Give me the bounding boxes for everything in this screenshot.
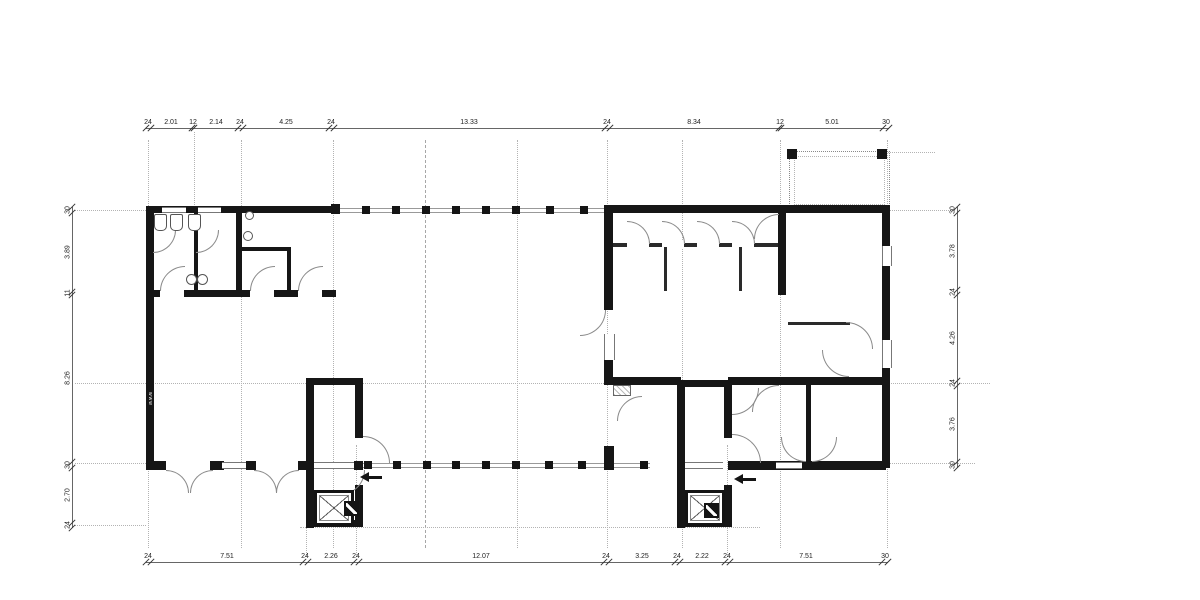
column [392,206,400,214]
grid-line [425,140,426,548]
door-arc [846,322,873,349]
dimension-label: 24 [236,119,244,126]
door-arc [732,221,755,244]
toilet-fixture [170,214,183,231]
column [452,206,460,214]
door-arc [732,434,761,463]
dimension-label: 2.14 [209,119,223,126]
door-arc [166,470,189,493]
dimension-label: 3.78 [950,244,957,258]
window [222,462,248,469]
stair-core-wall [355,378,363,438]
door-arc [363,436,390,463]
column [423,461,431,469]
wall-partition [806,385,811,463]
dimension-line [957,207,958,468]
dimension-label: 11 [65,289,72,296]
toilet-fixture [188,214,201,231]
dimension-label: 13.33 [460,119,478,126]
entry-arrow [734,474,758,484]
dimension-label: 7.51 [799,553,813,560]
door-arc [160,266,185,291]
dimension-label: 3.89 [65,245,72,259]
toilet-fixture [154,214,167,231]
stairs [687,390,724,460]
dimension-label: 12.07 [472,553,490,560]
grid-line [888,152,935,153]
dimension-label: 8.34 [687,119,701,126]
arrow-shaft [368,476,382,479]
door-arc [812,437,837,462]
grid-line [75,210,146,211]
window [197,207,221,213]
dimension-label: 24 [673,553,681,560]
dimension-label: 24 [144,119,152,126]
column [364,461,372,469]
door-arc [781,437,806,462]
column [331,204,340,214]
dimension-label: 24 [602,553,610,560]
grid-line [888,463,975,464]
dimension-label: 30 [882,119,890,126]
dimension-label: 24 [950,288,957,296]
wall-mid-horizontal [604,377,681,385]
dimension-line [72,207,73,528]
door-arc [580,310,606,336]
grid-line [75,525,146,526]
shaft-symbol [704,503,719,518]
column [512,461,520,469]
dimension-label: 24 [723,553,731,560]
dimension-label: 30 [65,206,72,214]
wall-outer-bottom [246,461,256,470]
dimension-label: 24 [603,119,611,126]
column [482,206,490,214]
door-arc [250,266,275,291]
dimension-label: 30 [881,553,889,560]
wall-partition [788,322,850,325]
wall-partition [242,247,291,251]
wall-pier [354,461,363,470]
dimension-line [146,562,888,563]
window [604,334,615,360]
grid-line [888,210,955,211]
wall-outer-bottom [146,461,166,470]
grid-line [194,132,195,217]
stair-core-wall [306,378,314,528]
dimension-label: 4.26 [950,331,957,345]
column [362,206,370,214]
dimension-label: 7.51 [220,553,234,560]
column [578,461,586,469]
column [452,461,460,469]
stairs [316,388,355,458]
grid-line [241,140,242,548]
wall-partition [778,205,786,295]
terrace-column [787,149,797,159]
wall-centre [604,206,613,310]
floor-plan-drawing: 242.01122.14244.252413.33248.34125.01302… [0,0,1200,600]
stair-core-wall [677,380,685,528]
window [882,246,892,266]
window [314,462,354,469]
dimension-label: 30 [950,461,957,469]
dimension-label: 8.26 [65,371,72,385]
door-arc [697,221,720,244]
dimension-label: 24 [144,553,152,560]
door-arc [190,470,213,493]
door-arc [627,221,650,244]
column [482,461,490,469]
column [546,206,554,214]
arrow-shaft [742,478,756,481]
wall-outer-top-right [604,205,890,213]
door-arc [196,230,219,253]
dimension-label: 2.70 [65,488,72,502]
dimension-label: 24 [950,379,957,387]
dimension-label: 2.01 [164,119,178,126]
door-arc [754,214,779,239]
sink-fixture [245,211,254,220]
door-arc [822,350,849,377]
dimension-label: 3.76 [950,417,957,431]
column [545,461,553,469]
door-arc [298,266,323,291]
dimension-label: 24 [352,553,360,560]
dimension-label: 12 [189,119,197,126]
grid-line [300,527,760,528]
grid-line [75,463,146,464]
door-arc [254,470,277,493]
window [776,462,802,469]
dimension-label: 30 [950,206,957,214]
dimension-label: 30 [65,461,72,469]
terrace-inner-outline [794,156,885,205]
grid-line [517,140,518,548]
column [580,206,588,214]
column [393,461,401,469]
column [512,206,520,214]
column [640,461,648,469]
wall-pier [604,446,614,470]
dimension-label: 24 [327,119,335,126]
window [162,207,186,213]
watermark-text: www [147,392,153,406]
wall-partition [287,247,291,293]
column [422,206,430,214]
wall-partition [739,247,742,291]
stair-core-wall [724,380,732,438]
sink-fixture [186,274,197,285]
dimension-label: 12 [776,119,784,126]
grid-line [333,140,334,548]
wall-partition [664,247,667,291]
door-arc [153,230,176,253]
wall-room-top [728,377,886,385]
grid-line [780,140,781,548]
dimension-label: 5.01 [825,119,839,126]
wall-outer-right [882,205,890,468]
sink-fixture [197,274,208,285]
dimension-label: 2.26 [324,553,338,560]
shelf-symbol [613,385,631,396]
terrace-column [877,149,887,159]
dimension-label: 4.25 [279,119,293,126]
entry-arrow [360,472,384,482]
curtain-wall-top [336,208,606,213]
shaft-symbol [344,501,359,516]
door-arc [276,470,299,493]
dimension-label: 24 [301,553,309,560]
window [685,462,723,469]
door-arc [617,396,642,421]
dimension-label: 2.22 [695,553,709,560]
sink-fixture [243,231,253,241]
window [882,340,892,368]
dimension-label: 24 [65,521,72,529]
dimension-label: 3.25 [635,553,649,560]
